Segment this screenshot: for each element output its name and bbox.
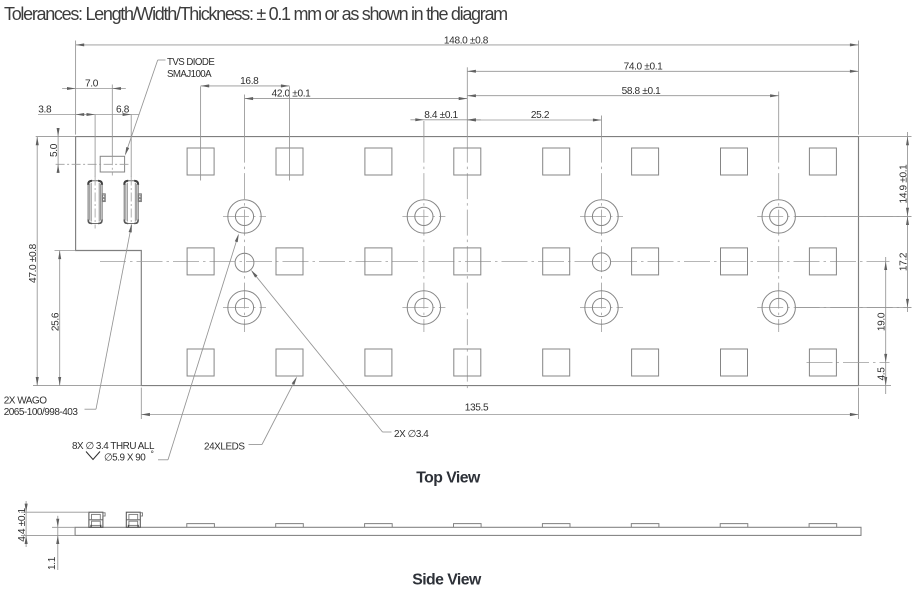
svg-text:TVS DIODE: TVS DIODE	[167, 57, 215, 68]
svg-text:8X ∅ 3.4 THRU ALL: 8X ∅ 3.4 THRU ALL	[72, 441, 155, 452]
svg-text:16.8: 16.8	[240, 76, 259, 87]
svg-text:SMAJ100A: SMAJ100A	[167, 69, 212, 80]
svg-text:1.1: 1.1	[47, 556, 58, 570]
svg-text:Side View: Side View	[412, 572, 482, 589]
svg-text:5.0: 5.0	[49, 143, 60, 157]
svg-text:24XLEDS: 24XLEDS	[204, 441, 245, 452]
svg-text:47.0 ±0.8: 47.0 ±0.8	[28, 243, 39, 283]
svg-text:°: °	[151, 449, 154, 459]
svg-text:2X WAGO: 2X WAGO	[4, 395, 48, 406]
svg-text:3.8: 3.8	[38, 105, 52, 116]
svg-text:74.0 ±0.1: 74.0 ±0.1	[624, 62, 664, 73]
svg-text:4.5: 4.5	[877, 367, 888, 381]
svg-text:17.2: 17.2	[898, 252, 909, 271]
svg-text:Top View: Top View	[416, 470, 481, 487]
svg-text:42.0 ±0.1: 42.0 ±0.1	[272, 88, 312, 99]
svg-text:25.6: 25.6	[51, 312, 62, 331]
svg-text:25.2: 25.2	[531, 110, 550, 121]
svg-text:2065-100/998-403: 2065-100/998-403	[4, 407, 79, 418]
svg-text:∅5.9 X 90: ∅5.9 X 90	[104, 452, 146, 463]
svg-text:7.0: 7.0	[85, 79, 99, 90]
svg-text:58.8 ±0.1: 58.8 ±0.1	[622, 86, 662, 97]
svg-text:Tolerances: Length/Width/Thick: Tolerances: Length/Width/Thickness: ± 0.…	[4, 4, 507, 24]
svg-text:6.8: 6.8	[116, 105, 130, 116]
svg-text:19.0: 19.0	[877, 312, 888, 331]
svg-text:14.9 ±0.1: 14.9 ±0.1	[898, 164, 909, 204]
svg-text:148.0 ±0.8: 148.0 ±0.8	[444, 36, 489, 47]
svg-text:8.4 ±0.1: 8.4 ±0.1	[424, 110, 458, 121]
svg-text:2X ∅3.4: 2X ∅3.4	[394, 429, 429, 440]
svg-text:135.5: 135.5	[465, 403, 489, 414]
